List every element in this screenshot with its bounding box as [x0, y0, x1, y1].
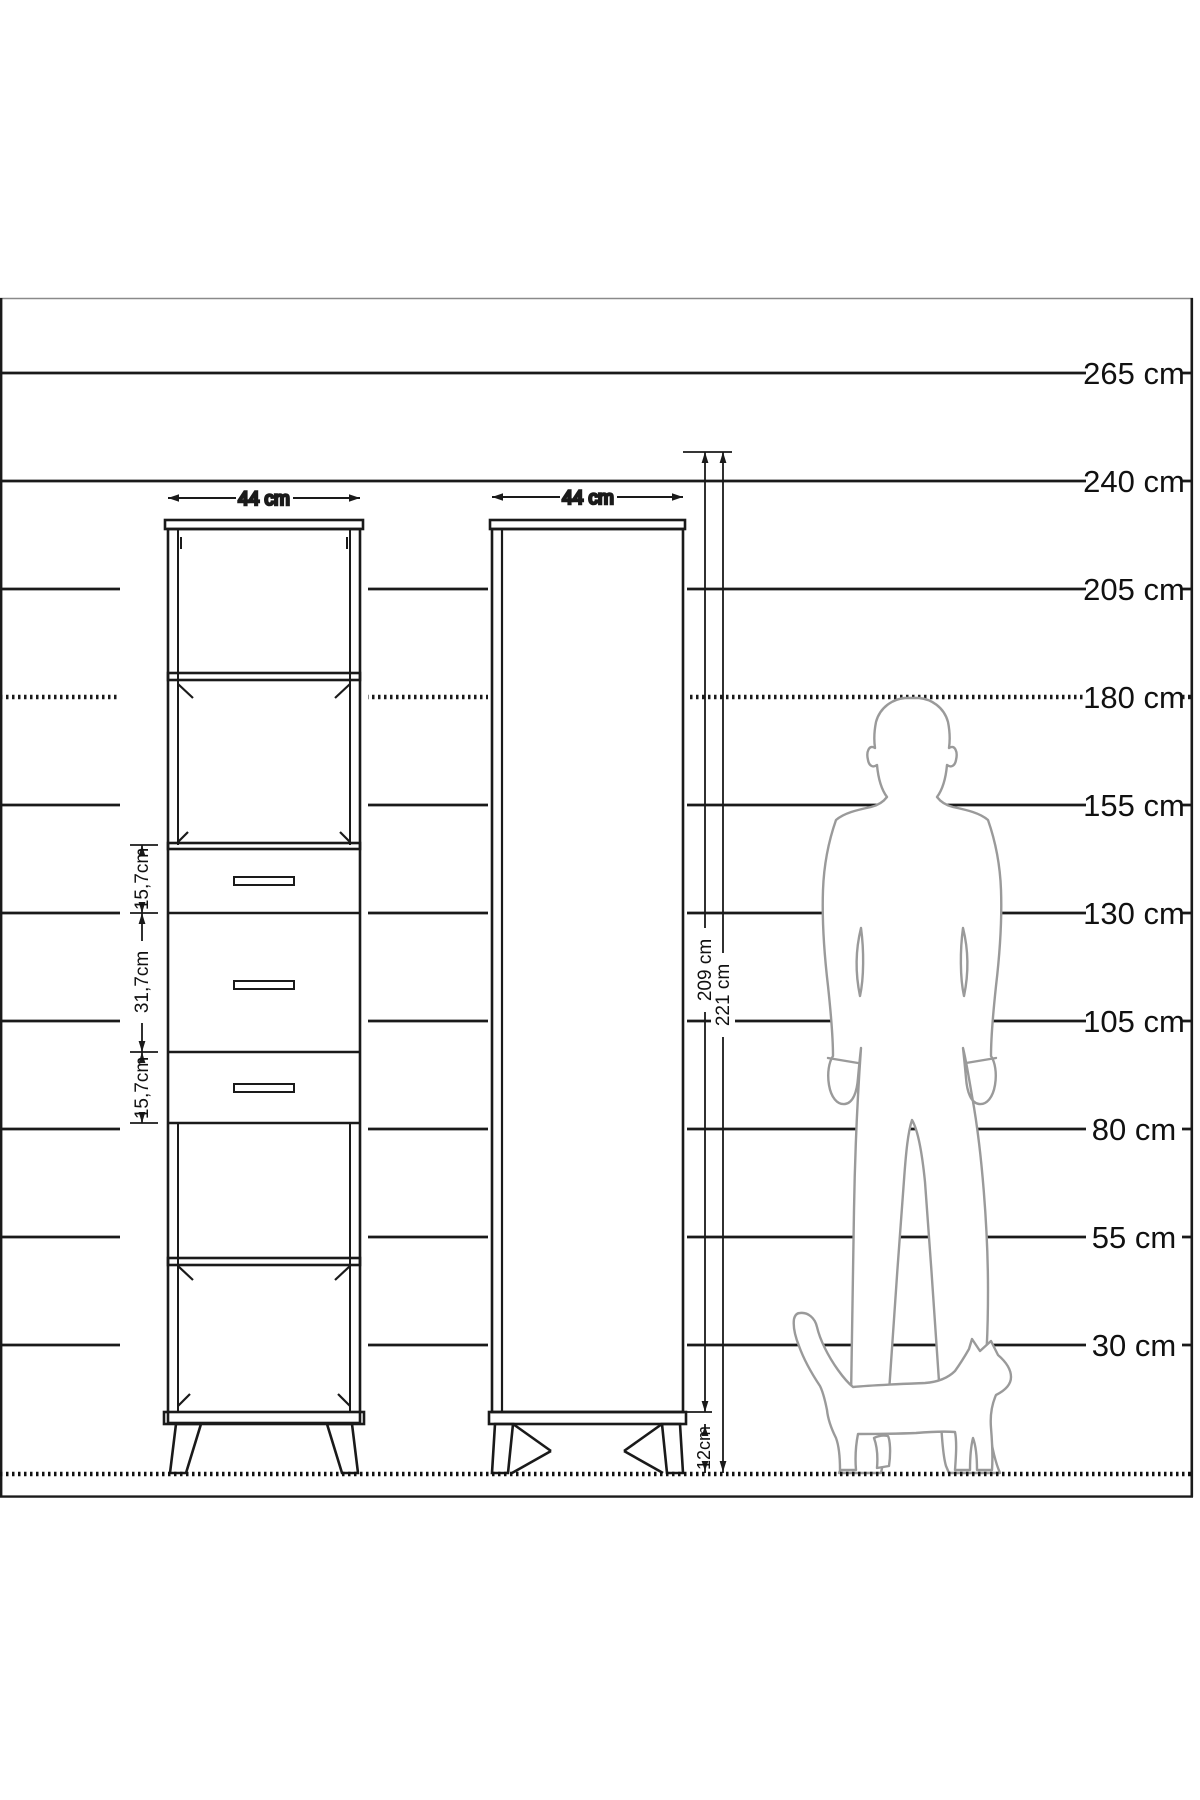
cat-midstep-leg [874, 1436, 890, 1468]
scale-label-105: 105 cm [1083, 1004, 1185, 1039]
scale-label-240: 240 cm [1083, 464, 1185, 499]
left-cabinet-width-label: 44 cm [238, 489, 290, 510]
scale-label-130: 130 cm [1083, 896, 1185, 931]
right-cabinet-mask [488, 490, 687, 1474]
left-cabinet-mask [120, 497, 368, 1474]
scale-label-80: 80 cm [1092, 1112, 1176, 1147]
technical-drawing-page: 44 cm [0, 0, 1200, 1800]
right-cabinet-total-height-label: 221 cm [713, 964, 734, 1026]
drawer-dim-label-3: 15,7cm [132, 1057, 153, 1119]
drawer-dim-label-2: 31,7cm [132, 951, 153, 1013]
left-cabinet: 44 cm [120, 487, 368, 1474]
scale-label-55: 55 cm [1092, 1220, 1176, 1255]
scale-label-30: 30 cm [1092, 1328, 1176, 1363]
man-arm-gap-right [961, 928, 967, 996]
man-arm-gap-left [857, 928, 863, 996]
right-cabinet-width-label: 44 cm [562, 488, 614, 509]
drawing-canvas: 44 cm [0, 0, 1200, 1800]
scale-label-265: 265 cm [1083, 356, 1185, 391]
right-cabinet-leg-height-label: 12cm [694, 1426, 714, 1470]
scale-label-180: 180 cm [1083, 680, 1185, 715]
scale-label-205: 205 cm [1083, 572, 1185, 607]
right-cabinet-height-dims: 209 cm 221 cm 12cm [683, 452, 735, 1473]
left-cabinet-drawer-dims: 15,7cm 31,7cm 15,7cm [130, 845, 158, 1123]
drawer-dim-label-1: 15,7cm [132, 848, 153, 910]
right-cabinet: 44 cm [488, 452, 735, 1474]
scale-label-155: 155 cm [1083, 788, 1185, 823]
height-scale-labels: 265 cm 240 cm 205 cm 180 cm 155 cm 130 c… [1083, 354, 1185, 1363]
